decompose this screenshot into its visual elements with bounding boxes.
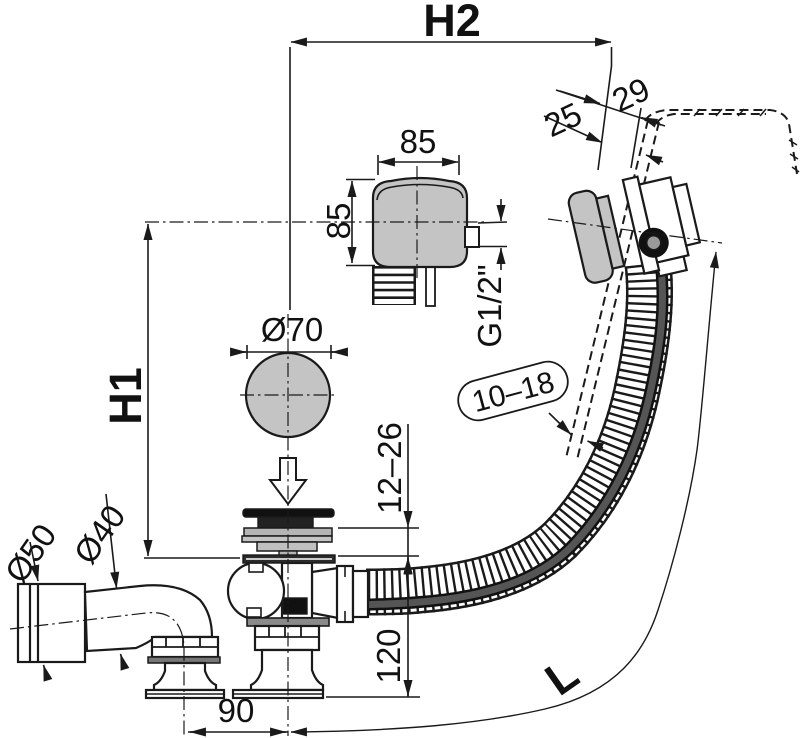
g12-side-port bbox=[465, 227, 479, 247]
ball-tab-bottom bbox=[247, 608, 261, 617]
pipe-d50-section bbox=[18, 584, 85, 662]
plug-barrel bbox=[258, 517, 313, 528]
left-foot-cup bbox=[154, 663, 216, 690]
hose-union-sleeve bbox=[353, 571, 368, 617]
label-d70: Ø70 bbox=[261, 311, 323, 348]
tub-rim-inner-edge bbox=[656, 114, 766, 124]
label-h1: H1 bbox=[100, 367, 151, 425]
label-offset90: 90 bbox=[218, 692, 255, 729]
waste-cup bbox=[251, 650, 323, 690]
bath-drain-dimension-drawing: H2 H1 L 85 85 29 25 Ø70 G1/2" 10–18 12–2… bbox=[0, 0, 800, 738]
cable-fitting bbox=[283, 598, 307, 614]
tub-rim-hatching bbox=[694, 109, 799, 172]
label-height120: 120 bbox=[370, 628, 407, 683]
bathtub-wall bbox=[566, 110, 797, 460]
label-d40: Ø40 bbox=[66, 498, 132, 570]
outlet-pipe-assembly bbox=[18, 584, 224, 698]
label-g12: G1/2" bbox=[471, 264, 508, 347]
label-rim25: 25 bbox=[538, 95, 587, 144]
label-h2: H2 bbox=[423, 0, 481, 46]
waste-nut bbox=[255, 626, 319, 650]
filler-tube bbox=[426, 265, 435, 306]
hose-cone bbox=[312, 568, 338, 618]
label-adjust: 12–26 bbox=[371, 422, 408, 514]
label-d50: Ø50 bbox=[0, 517, 63, 589]
plug-ring bbox=[257, 542, 317, 551]
ball-tab-top bbox=[249, 563, 263, 572]
label-length: L bbox=[536, 648, 588, 706]
technical-drawing-page: H2 H1 L 85 85 29 25 Ø70 G1/2" 10–18 12–2… bbox=[0, 0, 800, 738]
filler-box-unit bbox=[373, 178, 479, 306]
waste-body-assembly bbox=[228, 563, 368, 698]
plug-plate-lower bbox=[242, 536, 332, 542]
wall-thickness-leader bbox=[549, 413, 571, 435]
label-height85: 85 bbox=[320, 203, 357, 240]
tub-rim-edge bbox=[645, 110, 797, 174]
label-width85: 85 bbox=[400, 123, 437, 160]
label-rim29: 29 bbox=[606, 70, 655, 119]
